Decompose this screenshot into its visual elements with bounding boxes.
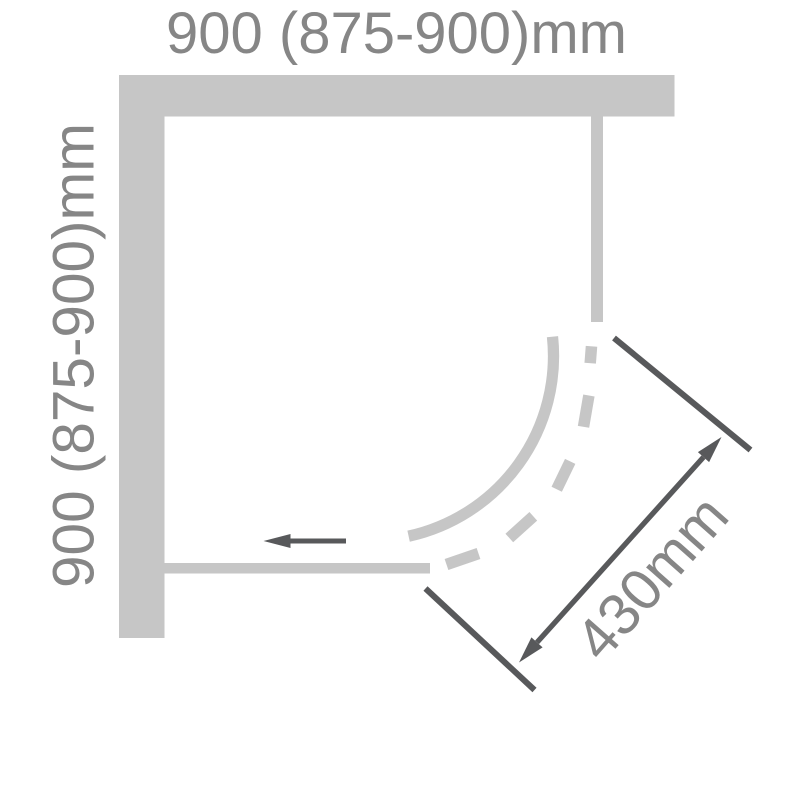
svg-text:900 (875-900)mm: 900 (875-900)mm — [166, 1, 627, 66]
svg-text:900 (875-900)mm: 900 (875-900)mm — [42, 123, 107, 588]
